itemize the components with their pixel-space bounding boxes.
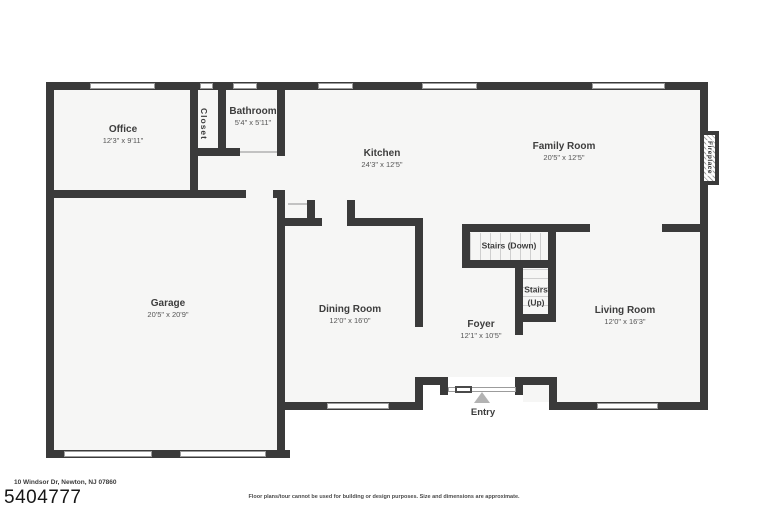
- room-label-family-room: Family Room 20'5" x 12'5": [533, 141, 596, 163]
- wall-segment: [226, 148, 240, 156]
- room-label-foyer: Foyer 12'1" x 10'5": [460, 319, 501, 341]
- window: [327, 403, 389, 409]
- wall-segment: [515, 314, 556, 322]
- wall-segment: [307, 200, 315, 226]
- room-label-office: Office 12'3" x 9'11": [103, 124, 144, 146]
- fireplace-label: Fireplace: [706, 140, 713, 175]
- wall-segment: [515, 268, 523, 335]
- room-label-garage: Garage 20'5" x 20'9": [147, 298, 188, 320]
- window: [318, 83, 353, 89]
- wall-segment: [190, 90, 198, 190]
- wall-segment: [277, 190, 285, 458]
- wall-segment: [190, 148, 226, 156]
- wall-segment: [285, 218, 322, 226]
- room-label-bathroom: Bathroom 5'4" x 5'11": [229, 106, 276, 128]
- entry-label: Entry: [471, 407, 495, 418]
- window: [422, 83, 477, 89]
- property-address: 10 Windsor Dr, Newton, NJ 07860: [14, 479, 117, 486]
- wall-segment: [440, 377, 448, 395]
- garage-door: [180, 451, 266, 457]
- fireplace: Fireplace: [700, 131, 719, 185]
- window: [592, 83, 665, 89]
- wall-segment: [347, 218, 423, 226]
- stairs-up-label-line2: (Up): [528, 298, 545, 309]
- window: [233, 83, 257, 89]
- door-opening-line: [288, 203, 307, 205]
- disclaimer-text: Floor plans/tour cannot be used for buil…: [248, 494, 519, 500]
- room-label-closet: Closet: [199, 108, 209, 140]
- floor-fill-garage: [54, 377, 285, 450]
- room-label-kitchen: Kitchen 24'3" x 12'5": [361, 148, 402, 170]
- wall-segment: [46, 90, 54, 458]
- door-opening-line: [240, 151, 277, 153]
- front-door-frame: [455, 386, 472, 393]
- floor-fill-main: [54, 90, 700, 377]
- wall-segment: [662, 224, 708, 232]
- room-label-dining-room: Dining Room 12'0" x 16'0": [319, 304, 381, 326]
- photo-id: 5404777: [4, 487, 81, 509]
- wall-segment: [415, 218, 423, 327]
- stairs-up-label-line1: Stairs: [524, 285, 548, 296]
- window: [200, 83, 213, 89]
- wall-segment: [277, 90, 285, 156]
- wall-segment: [462, 224, 590, 232]
- floor-plan: Fireplace Office 12'3" x 9'11" Closet Ba…: [0, 0, 768, 512]
- wall-segment: [46, 190, 246, 198]
- floor-fill-dining: [285, 377, 423, 402]
- wall-segment: [218, 90, 226, 148]
- stairs-down-label: Stairs (Down): [482, 241, 537, 252]
- window: [90, 83, 155, 89]
- room-label-living-room: Living Room 12'0" x 16'3": [595, 305, 656, 327]
- wall-segment: [462, 260, 556, 268]
- wall-segment: [548, 224, 556, 322]
- garage-door: [64, 451, 152, 457]
- window: [597, 403, 658, 409]
- entry-arrow-icon: [474, 392, 490, 403]
